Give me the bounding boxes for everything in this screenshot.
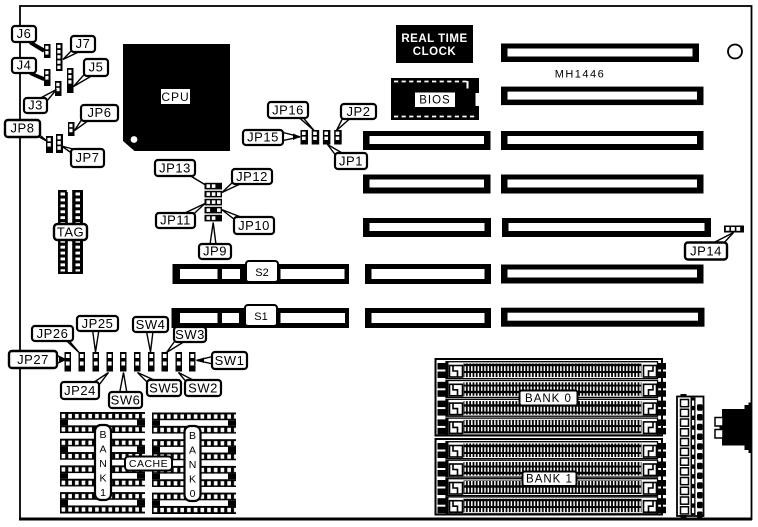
svg-text:BANK 0: BANK 0 <box>525 393 572 405</box>
svg-text:JP13: JP13 <box>159 161 191 176</box>
svg-text:B: B <box>99 429 106 441</box>
svg-text:CACHE: CACHE <box>129 458 168 470</box>
svg-text:JP9: JP9 <box>203 244 227 259</box>
svg-text:BIOS: BIOS <box>419 95 450 107</box>
svg-text:JP14: JP14 <box>690 244 722 259</box>
svg-text:JP1: JP1 <box>339 154 363 169</box>
svg-text:MH1446: MH1446 <box>555 69 606 81</box>
svg-text:JP16: JP16 <box>272 103 304 118</box>
svg-text:JP15: JP15 <box>247 130 279 145</box>
svg-text:SW5: SW5 <box>149 381 179 396</box>
svg-text:K: K <box>189 474 196 486</box>
svg-text:N: N <box>189 459 197 471</box>
svg-text:BANK 1: BANK 1 <box>526 474 573 486</box>
svg-text:JP27: JP27 <box>17 352 49 367</box>
svg-text:0: 0 <box>190 488 196 500</box>
svg-text:JP6: JP6 <box>88 105 112 120</box>
svg-text:SW3: SW3 <box>175 327 205 342</box>
svg-text:JP10: JP10 <box>238 218 270 233</box>
svg-text:JP2: JP2 <box>347 104 371 119</box>
svg-text:J5: J5 <box>89 60 104 75</box>
svg-text:A: A <box>189 445 196 457</box>
svg-text:SW4: SW4 <box>136 317 166 332</box>
svg-text:S2: S2 <box>255 267 268 279</box>
svg-text:TAG: TAG <box>57 225 84 240</box>
svg-text:K: K <box>99 473 106 485</box>
svg-text:CPU: CPU <box>161 90 189 104</box>
svg-text:J3: J3 <box>28 98 43 113</box>
svg-text:SW6: SW6 <box>111 393 141 408</box>
svg-text:SW1: SW1 <box>215 353 245 368</box>
svg-text:SW2: SW2 <box>188 381 218 396</box>
svg-text:J7: J7 <box>76 36 91 51</box>
svg-text:JP24: JP24 <box>64 383 96 398</box>
svg-text:A: A <box>99 444 106 456</box>
svg-text:JP12: JP12 <box>236 169 268 184</box>
svg-text:J4: J4 <box>17 58 32 73</box>
svg-text:JP26: JP26 <box>37 326 69 341</box>
svg-text:B: B <box>189 430 196 442</box>
svg-text:N: N <box>99 458 107 470</box>
svg-text:S1: S1 <box>254 311 267 323</box>
svg-text:CLOCK: CLOCK <box>413 46 457 58</box>
svg-text:J6: J6 <box>17 26 32 41</box>
svg-text:JP8: JP8 <box>11 121 35 136</box>
svg-text:JP25: JP25 <box>82 316 114 331</box>
svg-text:JP11: JP11 <box>160 213 191 228</box>
svg-text:JP7: JP7 <box>76 150 100 165</box>
svg-text:1: 1 <box>100 487 106 499</box>
svg-text:REAL TIME: REAL TIME <box>401 33 467 45</box>
